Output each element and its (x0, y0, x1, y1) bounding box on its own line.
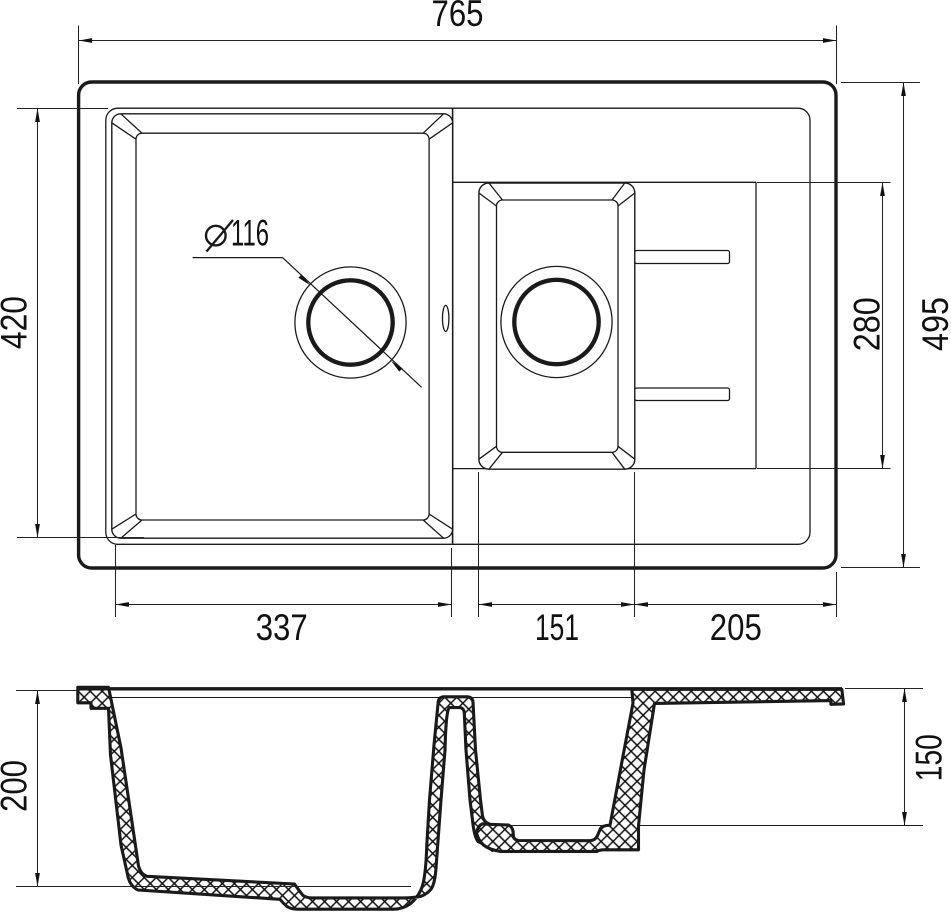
svg-text:765: 765 (432, 0, 484, 34)
svg-text:280: 280 (846, 297, 887, 351)
svg-text:205: 205 (710, 607, 762, 648)
svg-text:200: 200 (0, 760, 34, 812)
svg-text:150: 150 (909, 734, 950, 781)
svg-text:420: 420 (0, 296, 34, 349)
svg-text:116: 116 (231, 213, 269, 254)
svg-text:151: 151 (535, 607, 579, 648)
svg-text:337: 337 (256, 607, 308, 648)
svg-text:495: 495 (915, 297, 951, 351)
